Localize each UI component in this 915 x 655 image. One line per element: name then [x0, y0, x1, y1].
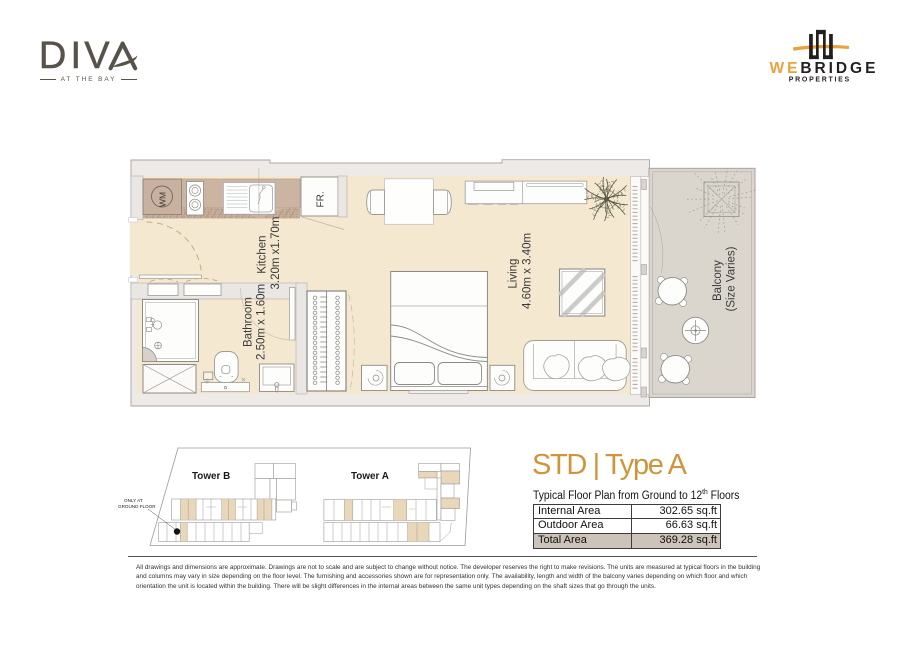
- svg-text:Living: Living: [508, 259, 520, 289]
- svg-text:WM: WM: [158, 192, 168, 207]
- svg-text:3.20m x1.70m: 3.20m x1.70m: [270, 217, 282, 290]
- svg-text:4.60m x 3.40m: 4.60m x 3.40m: [522, 233, 534, 309]
- svg-text:2.50m x 1.60m: 2.50m x 1.60m: [256, 284, 268, 360]
- svg-text:GROUND FLOOR: GROUND FLOOR: [118, 504, 156, 509]
- svg-text:Balcony: Balcony: [712, 260, 724, 301]
- svg-text:Tower A: Tower A: [351, 471, 389, 482]
- svg-text:FR.: FR.: [316, 191, 327, 207]
- svg-text:Kitchen: Kitchen: [257, 235, 269, 273]
- svg-text:Bathroom: Bathroom: [243, 297, 255, 347]
- svg-text:ONLY AT: ONLY AT: [124, 498, 143, 503]
- svg-text:Tower B: Tower B: [192, 471, 230, 482]
- svg-text:(Size Varies): (Size Varies): [726, 246, 738, 311]
